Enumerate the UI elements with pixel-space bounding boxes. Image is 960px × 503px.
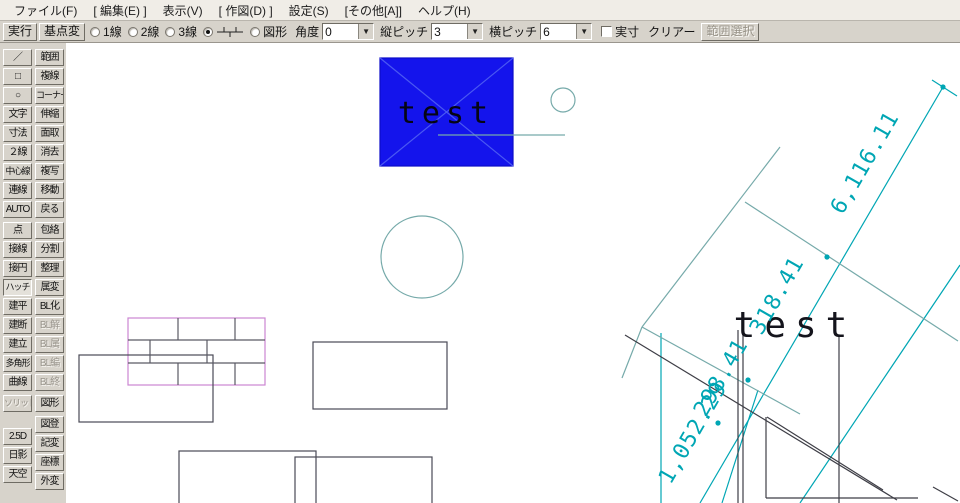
execute-button[interactable]: 実行: [3, 23, 37, 41]
chevron-down-icon[interactable]: ▼: [358, 24, 373, 39]
sidebar-button[interactable]: BL終: [35, 374, 64, 391]
actual-size-checkbox[interactable]: 実寸: [601, 23, 639, 40]
radio-circle-icon: [165, 27, 175, 37]
menu-item[interactable]: ファイル(F): [6, 0, 85, 21]
field-label: 横ピッチ: [489, 23, 537, 40]
sidebar-button[interactable]: 包絡: [35, 222, 64, 239]
tool-sidebar: ／□○文字寸法２線中心線連線AUTO範囲複線コーナー伸縮面取消去複写移動戻る点接…: [0, 43, 66, 503]
sidebar-button[interactable]: 複写: [35, 163, 64, 180]
sidebar-button[interactable]: 複線: [35, 68, 64, 85]
toolbar-buttons: 実行基点変: [3, 23, 85, 41]
hatch-type-radios: 1線2線3線図形: [87, 23, 290, 40]
sidebar-button[interactable]: 記変: [35, 435, 64, 452]
chevron-down-icon[interactable]: ▼: [576, 24, 591, 39]
sidebar-button[interactable]: 接円: [3, 260, 32, 277]
sidebar-button[interactable]: 移動: [35, 182, 64, 199]
sidebar-button[interactable]: 建平: [3, 298, 32, 315]
sidebar-button[interactable]: 消去: [35, 144, 64, 161]
toolbar-fields: 角度0▼縦ピッチ3▼横ピッチ6▼: [292, 23, 595, 40]
sidebar-button[interactable]: BL属: [35, 336, 64, 353]
chevron-down-icon[interactable]: ▼: [467, 24, 482, 39]
cad-line: [767, 417, 883, 490]
dimension-point: [745, 377, 750, 382]
radio-circle-icon: [250, 27, 260, 37]
menu-bar: ファイル(F)[ 編集(E) ]表示(V)[ 作図(D) ]設定(S)[その他[…: [0, 0, 960, 21]
cad-text: 6,116.11: [826, 107, 905, 218]
radio-label: 2線: [141, 23, 160, 40]
radio-circle-icon: [90, 27, 100, 37]
brick-pitch-icon: [216, 26, 244, 38]
radio-option-brick-pitch[interactable]: [203, 26, 244, 38]
cad-rect: [313, 342, 447, 409]
sidebar-button[interactable]: 図形: [35, 395, 64, 412]
sidebar-button[interactable]: ２線: [3, 144, 32, 161]
combo-value: 3: [432, 24, 467, 39]
base-point-change-button[interactable]: 基点変: [39, 23, 85, 41]
sidebar-button[interactable]: ソリッド: [3, 395, 32, 412]
sidebar-button[interactable]: 接線: [3, 241, 32, 258]
sidebar-button[interactable]: 建断: [3, 317, 32, 334]
toolbar-field: 横ピッチ6▼: [489, 23, 592, 40]
radio-option[interactable]: 3線: [165, 23, 197, 40]
cad-line: [622, 327, 642, 378]
cad-circle: [381, 216, 463, 298]
sidebar-button[interactable]: 範囲: [35, 49, 64, 66]
sidebar-button[interactable]: 多角形: [3, 355, 32, 372]
sidebar-button[interactable]: 座標: [35, 454, 64, 471]
toolbar-field: 縦ピッチ3▼: [380, 23, 483, 40]
sidebar-button[interactable]: 面取: [35, 125, 64, 142]
sidebar-button[interactable]: 建立: [3, 336, 32, 353]
sidebar-button[interactable]: 天空: [3, 466, 32, 483]
sidebar-button[interactable]: 整理: [35, 260, 64, 277]
radio-circle-icon: [203, 27, 213, 37]
sidebar-button[interactable]: 寸法: [3, 125, 32, 142]
sidebar-button[interactable]: 文字: [3, 106, 32, 123]
sidebar-button[interactable]: ハッチ: [3, 279, 32, 296]
sidebar-button[interactable]: 曲線: [3, 374, 32, 391]
combo-value: 0: [323, 24, 358, 39]
line-tool-icon[interactable]: ／: [3, 49, 32, 66]
sidebar-button[interactable]: 連線: [3, 182, 32, 199]
menu-item[interactable]: [ 編集(E) ]: [85, 0, 154, 21]
dimension-point: [824, 254, 829, 259]
combo-value: 6: [541, 24, 576, 39]
sidebar-button[interactable]: 2.5D: [3, 428, 32, 445]
toolbar-field: 角度0▼: [295, 23, 374, 40]
cad-circle: [551, 88, 575, 112]
cad-line: [800, 265, 960, 503]
cad-line: [642, 147, 780, 327]
range-select-button[interactable]: 範囲選択: [701, 23, 759, 41]
sidebar-button[interactable]: BL編: [35, 355, 64, 372]
sidebar-button[interactable]: 図登: [35, 416, 64, 433]
sidebar-button[interactable]: BL解: [35, 317, 64, 334]
sidebar-button[interactable]: 外変: [35, 473, 64, 490]
cad-rect: [128, 318, 265, 385]
radio-option[interactable]: 1線: [90, 23, 122, 40]
circle-tool-icon[interactable]: ○: [3, 87, 32, 104]
checkbox-box-icon: [601, 26, 612, 37]
radio-option[interactable]: 2線: [128, 23, 160, 40]
sidebar-button[interactable]: コーナー: [35, 87, 64, 104]
cad-canvas[interactable]: testtest6,116.11318.41298.411,052.29: [0, 0, 960, 503]
clear-button[interactable]: クリアー: [644, 23, 699, 40]
combo-box[interactable]: 0▼: [322, 23, 374, 40]
menu-item[interactable]: [その他[A]]: [337, 0, 410, 21]
radio-option[interactable]: 図形: [250, 23, 287, 40]
cad-line: [933, 487, 958, 501]
hatch-toolbar: 実行基点変 1線2線3線図形 角度0▼縦ピッチ3▼横ピッチ6▼ 実寸 クリアー …: [0, 21, 960, 43]
sidebar-button[interactable]: 点: [3, 222, 32, 239]
radio-label: 1線: [103, 23, 122, 40]
cad-rect: [79, 355, 213, 422]
dimension-point: [715, 420, 720, 425]
actual-size-label: 実寸: [615, 23, 639, 40]
menu-item[interactable]: 設定(S): [281, 0, 337, 21]
sidebar-button[interactable]: AUTO: [3, 201, 32, 218]
combo-box[interactable]: 6▼: [540, 23, 592, 40]
menu-item[interactable]: [ 作図(D) ]: [211, 0, 281, 21]
menu-item[interactable]: ヘルプ(H): [410, 0, 479, 21]
radio-label: 3線: [178, 23, 197, 40]
radio-circle-icon: [128, 27, 138, 37]
cad-line: [722, 390, 758, 503]
cad-text: test: [398, 96, 494, 131]
sidebar-button[interactable]: 伸縮: [35, 106, 64, 123]
field-label: 角度: [295, 23, 319, 40]
menu-item[interactable]: 表示(V): [155, 0, 211, 21]
sidebar-button[interactable]: 戻る: [35, 201, 64, 218]
sidebar-button[interactable]: 属変: [35, 279, 64, 296]
sidebar-button[interactable]: BL化: [35, 298, 64, 315]
dimension-point: [940, 84, 945, 89]
radio-label: 図形: [263, 23, 287, 40]
menu-items: ファイル(F)[ 編集(E) ]表示(V)[ 作図(D) ]設定(S)[その他[…: [6, 0, 479, 21]
sidebar-button[interactable]: 日影: [3, 447, 32, 464]
cad-text: 1,052.29: [654, 377, 733, 488]
combo-box[interactable]: 3▼: [431, 23, 483, 40]
sidebar-button[interactable]: 分割: [35, 241, 64, 258]
sidebar-button[interactable]: 中心線: [3, 163, 32, 180]
cad-line: [700, 87, 943, 503]
rect-tool-icon[interactable]: □: [3, 68, 32, 85]
field-label: 縦ピッチ: [380, 23, 428, 40]
